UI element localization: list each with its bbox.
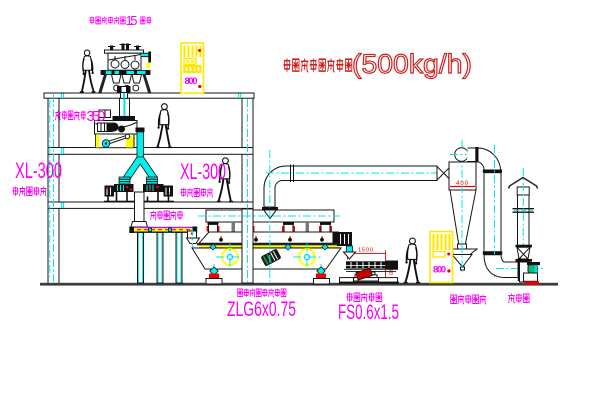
svg-text:(500kg/h): (500kg/h) (352, 49, 472, 79)
svg-text:800: 800 (433, 265, 446, 276)
svg-text:ZLG6x0.75: ZLG6x0.75 (227, 298, 296, 321)
svg-text:1500: 1500 (358, 248, 373, 254)
svg-text:FS0.6x1.5: FS0.6x1.5 (338, 301, 399, 324)
svg-text:1.5: 1.5 (126, 13, 138, 28)
svg-text:350: 350 (87, 109, 106, 125)
svg-text:XL-300: XL-300 (180, 159, 226, 184)
svg-text:XL-300: XL-300 (15, 158, 62, 183)
svg-text:800: 800 (185, 76, 198, 87)
